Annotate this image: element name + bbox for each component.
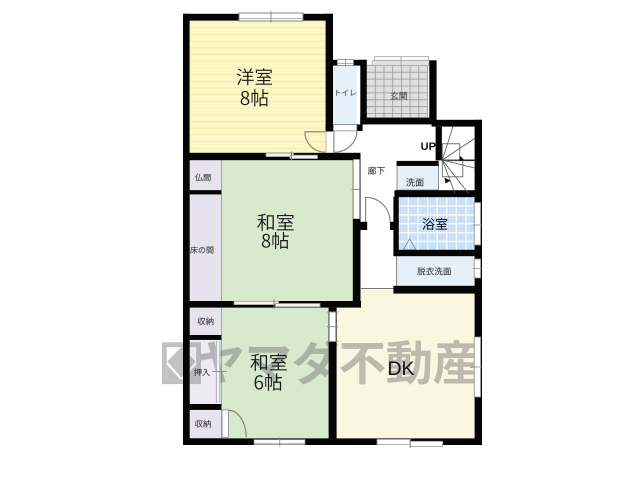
svg-text:UP: UP bbox=[421, 141, 436, 153]
svg-text:DK: DK bbox=[387, 358, 414, 380]
